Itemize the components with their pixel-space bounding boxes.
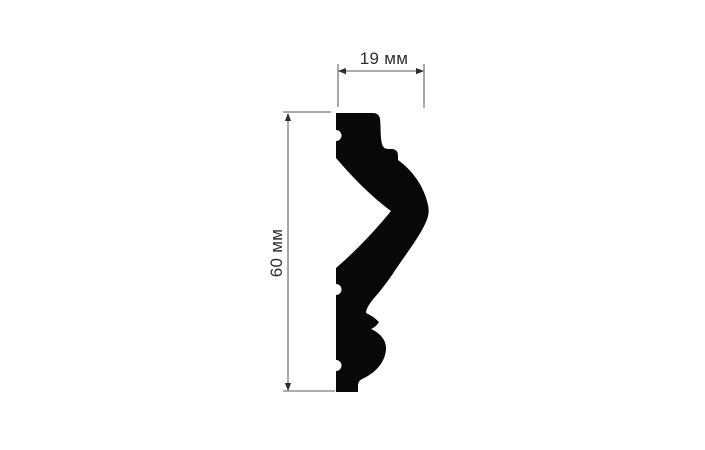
width-dimension-label: 19 мм (360, 49, 409, 68)
technical-drawing: 19 мм 60 мм (0, 0, 705, 450)
height-dimension-label: 60 мм (267, 229, 286, 278)
molding-drawing-canvas: 19 мм 60 мм (0, 0, 705, 450)
